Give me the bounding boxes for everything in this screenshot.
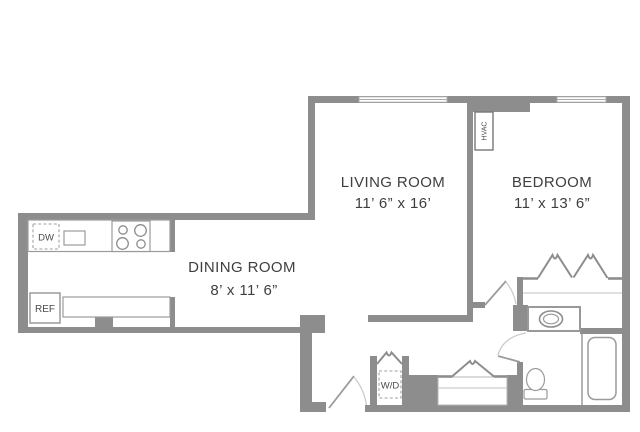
hvac-label: HVAC [482, 122, 489, 141]
window-bedroom [557, 97, 606, 102]
wall-counter-bump [95, 317, 113, 327]
dining-room-dimensions: 8’ x 11’ 6” [210, 282, 277, 299]
floor-plan: DW REF HVAC [0, 0, 640, 432]
wall-hvac-bump [468, 102, 530, 112]
walls [18, 96, 630, 412]
wall-bedroom-door-jamb [473, 302, 485, 308]
wall-kitchen-left [18, 213, 28, 333]
hvac-closet: HVAC [475, 112, 493, 150]
wall-linen-right [507, 375, 517, 405]
wall-entry-left [300, 333, 312, 412]
wall-lower-counter-right [170, 297, 175, 327]
bedroom-closet [517, 255, 622, 293]
dishwasher: DW [33, 224, 59, 249]
refrigerator-label: REF [35, 304, 55, 315]
wd-closet-bifold-doors [377, 353, 402, 365]
kitchen-lower-counter [63, 297, 170, 317]
wall-bath-left [517, 362, 523, 405]
wall-dining-bottom [18, 327, 312, 333]
wall-living-bedroom-partition [467, 102, 473, 322]
kitchen-sink [64, 231, 85, 245]
living-room-label: LIVING ROOM [341, 174, 445, 191]
toilet [524, 369, 547, 400]
wall-living-bottom [368, 315, 473, 322]
wall-entry-corner-block [300, 315, 325, 333]
washer-dryer-closet: W/D [377, 353, 402, 399]
linen-closet-bifold-doors [452, 361, 494, 377]
wall-bedroom-closet-left [517, 277, 523, 305]
wall-wd-left [370, 356, 377, 405]
bedroom-label: BEDROOM [512, 174, 592, 191]
bedroom-dimensions: 11’ x 13’ 6” [514, 195, 590, 212]
wall-wd-right [402, 356, 409, 405]
bathroom-door [498, 333, 526, 362]
wall-living-left [308, 96, 315, 220]
refrigerator: REF [30, 293, 60, 323]
living-room-dimensions: 11’ 6” x 16’ [355, 195, 432, 212]
dining-room-label: DINING ROOM [188, 259, 296, 276]
wall-wd-linen-block [409, 375, 438, 405]
bedroom-closet-bifold-doors [538, 255, 608, 278]
bedroom-door [485, 281, 516, 305]
bathroom-vanity [528, 307, 580, 331]
entry-door [329, 376, 367, 408]
wall-entry-foot [300, 402, 326, 412]
washer-dryer-label: W/D [381, 381, 400, 392]
dishwasher-label: DW [38, 233, 54, 244]
cooktop [112, 221, 150, 252]
bathtub [588, 338, 616, 400]
wall-hall-bottom [365, 405, 630, 412]
linen-closet [438, 361, 507, 405]
floor-plan-drawing: DW REF HVAC [0, 0, 640, 432]
window-living-room [359, 97, 447, 102]
wall-vanity-left-block [513, 305, 528, 331]
wall-right [622, 96, 630, 412]
wall-bath-top [580, 328, 622, 334]
wall-kitchen-top [18, 213, 315, 220]
wall-kitchen-counter-divider [170, 220, 175, 252]
